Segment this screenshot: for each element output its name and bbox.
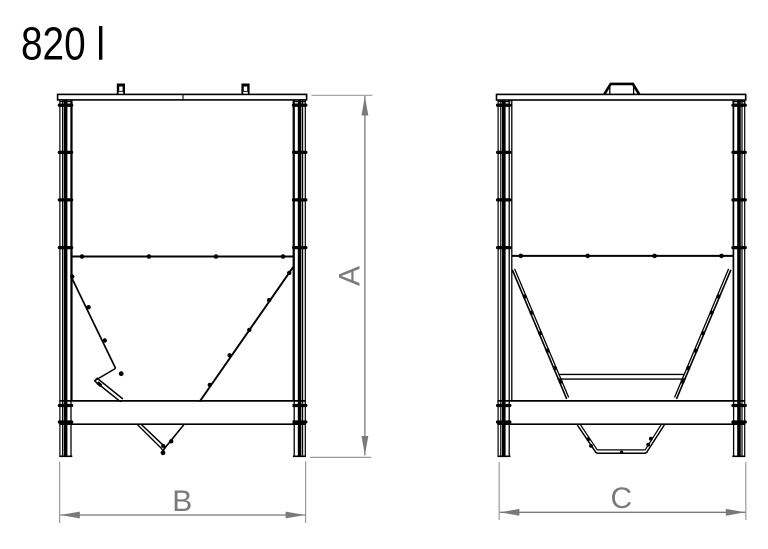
svg-text:B: B [172, 485, 192, 518]
svg-text:C: C [610, 482, 632, 515]
svg-text:A: A [334, 266, 367, 286]
svg-text:820 l: 820 l [21, 18, 105, 70]
